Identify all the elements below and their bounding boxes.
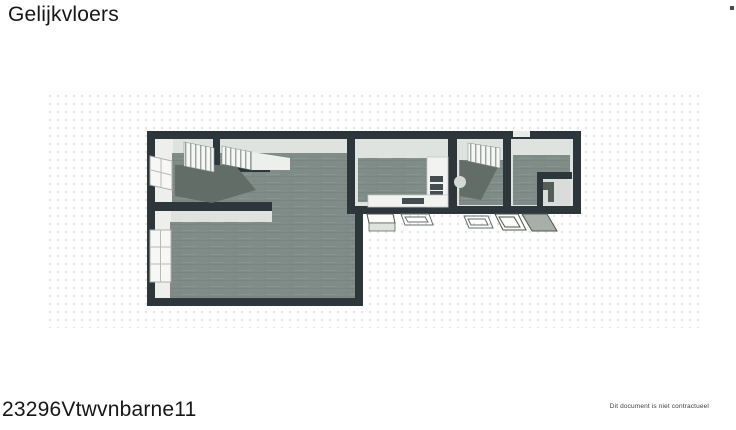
wall-mirror: [454, 176, 466, 188]
reference-code: 23296Vtwvnbarne11: [2, 398, 197, 422]
top-wall-window: [513, 131, 530, 137]
facade-objects: [367, 214, 557, 231]
disclaimer-text: Dit document is niet contractueel: [610, 403, 709, 410]
corner-mark: [730, 6, 734, 10]
floor-plan-3d-render: [0, 0, 736, 430]
cooktop: [402, 198, 424, 204]
window-upper-left: [150, 156, 172, 190]
window-lower-left: [150, 230, 171, 282]
